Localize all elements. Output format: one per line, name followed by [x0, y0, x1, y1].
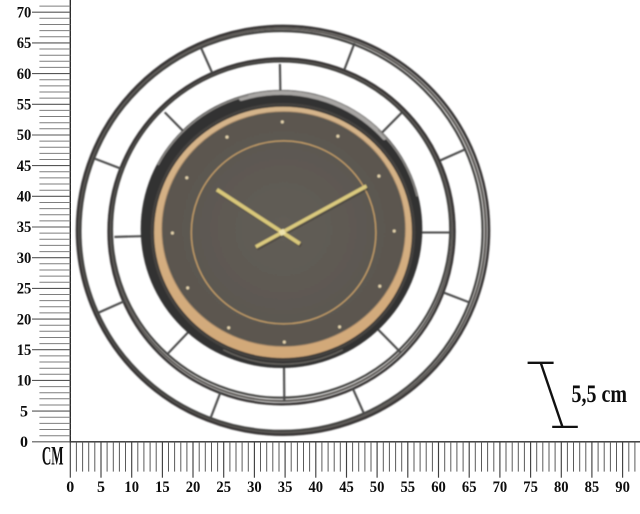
svg-text:45: 45 — [17, 158, 32, 175]
svg-text:45: 45 — [339, 479, 354, 496]
svg-text:0: 0 — [20, 434, 28, 451]
svg-text:15: 15 — [17, 342, 32, 359]
svg-text:70: 70 — [17, 4, 32, 21]
svg-text:25: 25 — [17, 281, 32, 298]
svg-text:30: 30 — [17, 250, 32, 267]
svg-text:85: 85 — [585, 479, 600, 496]
svg-text:55: 55 — [17, 97, 32, 114]
svg-text:50: 50 — [17, 127, 32, 144]
svg-text:20: 20 — [186, 479, 201, 496]
svg-text:10: 10 — [124, 479, 139, 496]
svg-text:5,5 cm: 5,5 cm — [572, 380, 628, 408]
svg-text:35: 35 — [278, 479, 293, 496]
svg-text:70: 70 — [493, 479, 508, 496]
svg-text:15: 15 — [155, 479, 170, 496]
svg-text:80: 80 — [554, 479, 569, 496]
svg-text:60: 60 — [431, 479, 446, 496]
svg-text:65: 65 — [17, 35, 32, 52]
svg-text:25: 25 — [216, 479, 231, 496]
svg-text:65: 65 — [462, 479, 477, 496]
svg-text:55: 55 — [401, 479, 416, 496]
svg-text:30: 30 — [247, 479, 262, 496]
svg-text:5: 5 — [97, 479, 105, 496]
svg-text:40: 40 — [309, 479, 324, 496]
svg-text:75: 75 — [523, 479, 538, 496]
svg-text:35: 35 — [17, 219, 32, 236]
svg-text:50: 50 — [370, 479, 385, 496]
svg-text:5: 5 — [20, 403, 28, 420]
svg-text:20: 20 — [17, 311, 32, 328]
svg-text:60: 60 — [17, 66, 32, 83]
svg-text:CM: CM — [42, 443, 64, 471]
svg-text:10: 10 — [17, 373, 32, 390]
svg-text:90: 90 — [615, 479, 630, 496]
svg-text:0: 0 — [66, 479, 74, 496]
svg-text:40: 40 — [17, 189, 32, 206]
